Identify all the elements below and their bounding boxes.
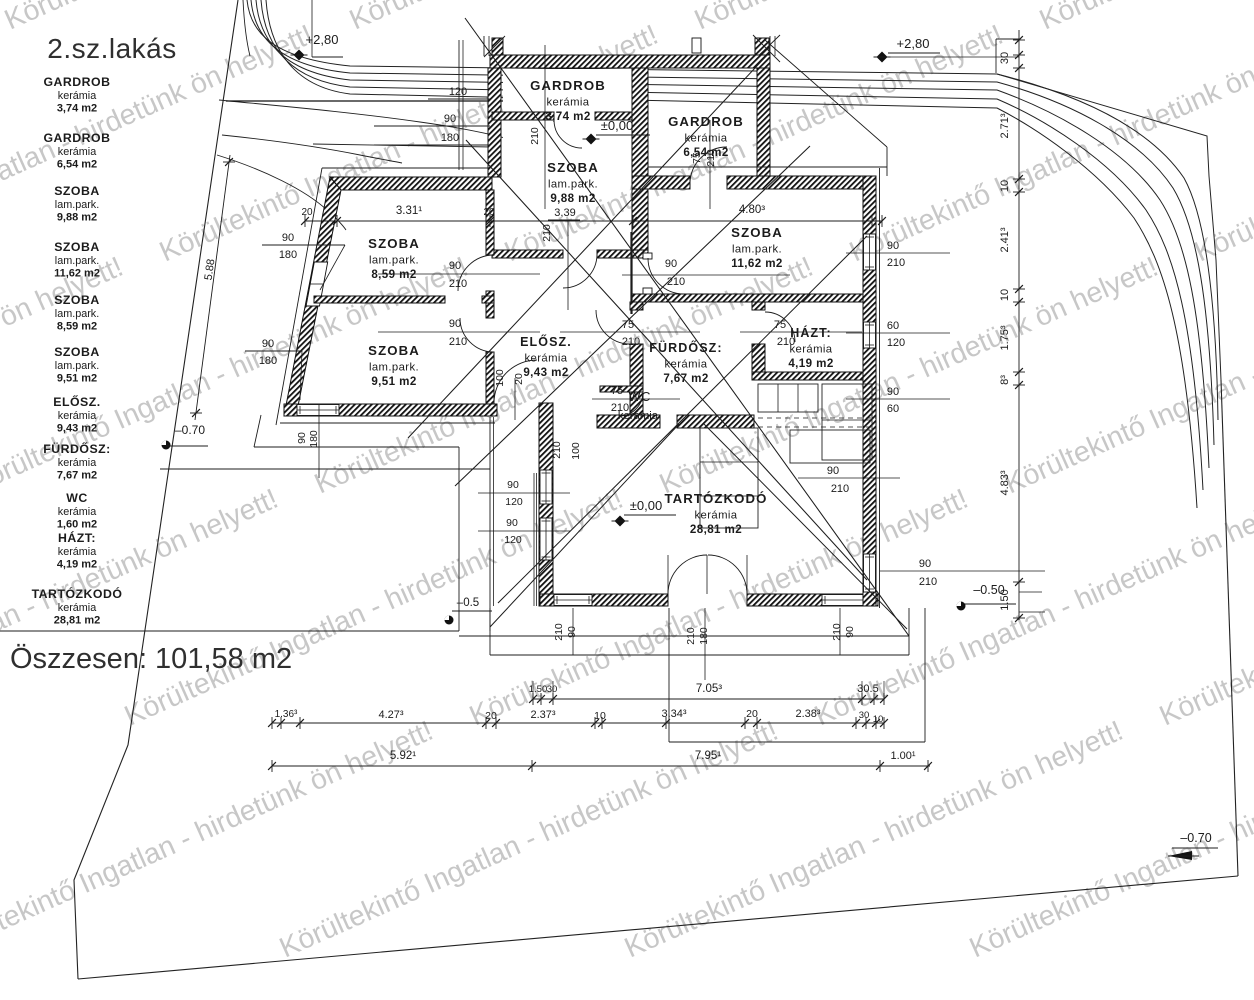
svg-text:3,74 m2: 3,74 m2 (545, 110, 590, 123)
svg-text:9,51 m2: 9,51 m2 (57, 373, 97, 385)
svg-text:kerámia: kerámia (58, 546, 96, 558)
svg-text:100: 100 (570, 442, 582, 460)
svg-text:HÁZT:: HÁZT: (58, 530, 96, 545)
svg-text:28,81 m2: 28,81 m2 (54, 615, 100, 627)
svg-text:11,62 m2: 11,62 m2 (54, 268, 100, 280)
svg-text:120: 120 (505, 496, 523, 508)
svg-text:90: 90 (449, 260, 461, 272)
svg-text:90: 90 (665, 258, 677, 270)
svg-text:8,59 m2: 8,59 m2 (371, 268, 416, 281)
svg-text:90: 90 (507, 479, 519, 491)
svg-text:TARTÓZKODÓ: TARTÓZKODÓ (664, 491, 767, 506)
svg-text:20: 20 (485, 710, 497, 722)
svg-text:8,59 m2: 8,59 m2 (57, 321, 97, 333)
svg-text:–0.70: –0.70 (175, 423, 205, 437)
svg-text:HÁZT:: HÁZT: (790, 325, 832, 340)
svg-text:210: 210 (551, 441, 563, 459)
svg-text:kerámia: kerámia (547, 97, 590, 109)
svg-text:SZOBA: SZOBA (54, 240, 100, 254)
svg-text:20: 20 (746, 708, 758, 720)
svg-text:SZOBA: SZOBA (54, 345, 100, 359)
svg-text:90: 90 (919, 558, 931, 570)
svg-text:180: 180 (308, 430, 320, 448)
svg-text:2.37³: 2.37³ (530, 709, 555, 721)
svg-text:30.5: 30.5 (857, 683, 878, 695)
svg-text:28,81 m2: 28,81 m2 (690, 523, 742, 536)
svg-text:4.80³: 4.80³ (739, 204, 765, 216)
svg-text:SZOBA: SZOBA (731, 225, 783, 240)
svg-text:9,51 m2: 9,51 m2 (371, 375, 416, 388)
svg-text:3,74 m2: 3,74 m2 (57, 103, 97, 115)
svg-text:90: 90 (449, 318, 461, 330)
svg-text:3,39: 3,39 (554, 207, 575, 219)
svg-text:210: 210 (831, 623, 843, 641)
svg-text:1.50: 1.50 (999, 589, 1011, 610)
svg-text:20: 20 (513, 373, 525, 385)
svg-text:75: 75 (622, 319, 634, 331)
svg-text:WC: WC (629, 390, 652, 404)
svg-text:9,43 m2: 9,43 m2 (523, 366, 568, 379)
svg-text:±0,00: ±0,00 (630, 498, 662, 513)
svg-text:90: 90 (506, 517, 518, 529)
svg-text:11,62 m2: 11,62 m2 (731, 257, 783, 270)
svg-text:10: 10 (999, 289, 1011, 301)
svg-text:7.05³: 7.05³ (696, 683, 722, 695)
svg-text:kerámia: kerámia (58, 506, 96, 518)
svg-text:kerámia: kerámia (695, 510, 738, 522)
svg-text:2.sz.lakás: 2.sz.lakás (47, 33, 177, 64)
svg-text:60: 60 (887, 320, 899, 332)
svg-text:75: 75 (691, 152, 703, 164)
svg-text:GARDROB: GARDROB (43, 75, 110, 89)
svg-text:20: 20 (301, 207, 313, 218)
svg-text:90: 90 (296, 432, 308, 444)
svg-text:210: 210 (449, 278, 467, 290)
svg-text:210: 210 (667, 276, 685, 288)
svg-text:75: 75 (774, 319, 786, 331)
svg-text:±0,00: ±0,00 (601, 118, 633, 133)
svg-text:8³: 8³ (999, 375, 1011, 385)
svg-text:–0.5: –0.5 (457, 597, 479, 609)
svg-text:1.00¹: 1.00¹ (890, 750, 915, 762)
svg-text:210: 210 (887, 257, 905, 269)
svg-text:10: 10 (594, 710, 606, 722)
svg-text:ELŐSZ.: ELŐSZ. (53, 394, 100, 409)
svg-text:lam.park.: lam.park. (55, 255, 99, 267)
svg-text:90: 90 (887, 240, 899, 252)
svg-text:kerámia: kerámia (58, 457, 96, 469)
svg-text:TARTÓZKODÓ: TARTÓZKODÓ (32, 586, 123, 601)
svg-text:210: 210 (529, 127, 541, 145)
svg-text:20: 20 (483, 207, 495, 218)
svg-text:210: 210 (449, 336, 467, 348)
svg-text:30: 30 (547, 684, 558, 695)
svg-text:180: 180 (259, 355, 277, 367)
svg-text:210: 210 (705, 149, 717, 167)
svg-text:–0.70: –0.70 (1180, 831, 1211, 845)
svg-text:kerámia: kerámia (525, 353, 568, 365)
svg-text:kerámia: kerámia (685, 133, 728, 145)
svg-text:210: 210 (541, 224, 553, 242)
svg-text:180: 180 (441, 132, 459, 144)
svg-text:lam.park.: lam.park. (55, 199, 99, 211)
svg-text:210: 210 (611, 402, 629, 414)
svg-text:Öszzesen: 101,58 m2: Öszzesen: 101,58 m2 (10, 643, 292, 675)
svg-text:ELŐSZ.: ELŐSZ. (520, 334, 572, 349)
svg-text:9,88 m2: 9,88 m2 (550, 192, 595, 205)
svg-text:120: 120 (504, 534, 522, 546)
svg-text:GARDROB: GARDROB (43, 131, 110, 145)
svg-text:5.92¹: 5.92¹ (390, 750, 416, 762)
svg-text:9,88 m2: 9,88 m2 (57, 212, 97, 224)
svg-text:lam.park.: lam.park. (548, 179, 598, 191)
svg-text:210: 210 (622, 336, 640, 348)
svg-text:100: 100 (494, 369, 506, 387)
svg-text:+2,80: +2,80 (306, 32, 339, 47)
svg-text:75: 75 (611, 385, 623, 397)
svg-text:2.38³: 2.38³ (795, 708, 820, 720)
svg-text:SZOBA: SZOBA (54, 293, 100, 307)
svg-text:210: 210 (777, 336, 795, 348)
svg-text:SZOBA: SZOBA (54, 184, 100, 198)
svg-text:GARDROB: GARDROB (530, 78, 606, 93)
svg-text:9,43 m2: 9,43 m2 (57, 423, 97, 435)
svg-text:10: 10 (873, 714, 884, 725)
svg-text:7,67 m2: 7,67 m2 (57, 470, 97, 482)
svg-text:3.31¹: 3.31¹ (396, 205, 422, 217)
svg-text:120: 120 (887, 337, 905, 349)
svg-text:210: 210 (553, 623, 565, 641)
svg-text:1.75³: 1.75³ (999, 325, 1011, 350)
svg-text:1.36³: 1.36³ (275, 709, 298, 720)
svg-text:lam.park.: lam.park. (369, 362, 419, 374)
svg-text:90: 90 (262, 338, 274, 350)
svg-text:SZOBA: SZOBA (368, 343, 420, 358)
svg-text:4.27³: 4.27³ (378, 709, 403, 721)
svg-text:+2,80: +2,80 (897, 36, 930, 51)
svg-text:lam.park.: lam.park. (55, 360, 99, 372)
svg-text:120: 120 (449, 86, 467, 98)
svg-text:3.34³: 3.34³ (661, 708, 686, 720)
svg-text:kerámia: kerámia (665, 359, 708, 371)
svg-text:90: 90 (887, 386, 899, 398)
svg-text:lam.park.: lam.park. (55, 308, 99, 320)
svg-text:60: 60 (887, 403, 899, 415)
svg-text:90: 90 (444, 113, 456, 125)
svg-text:210: 210 (831, 483, 849, 495)
svg-text:lam.park.: lam.park. (732, 244, 782, 256)
svg-text:FÜRDŐSZ:: FÜRDŐSZ: (649, 340, 722, 355)
svg-text:30: 30 (859, 710, 870, 721)
svg-text:30: 30 (999, 52, 1011, 64)
svg-text:kerámia: kerámia (58, 146, 96, 158)
svg-text:SZOBA: SZOBA (547, 160, 599, 175)
svg-text:4,19 m2: 4,19 m2 (57, 559, 97, 571)
svg-text:SZOBA: SZOBA (368, 236, 420, 251)
svg-text:90: 90 (827, 465, 839, 477)
svg-text:2.71³: 2.71³ (999, 113, 1011, 138)
svg-text:210: 210 (919, 576, 937, 588)
svg-text:90: 90 (282, 232, 294, 244)
svg-text:7,67 m2: 7,67 m2 (663, 372, 708, 385)
svg-text:FÜRDŐSZ:: FÜRDŐSZ: (43, 441, 111, 456)
svg-text:WC: WC (66, 491, 88, 505)
svg-text:180: 180 (279, 249, 297, 261)
svg-text:4.83³: 4.83³ (999, 470, 1011, 495)
svg-text:GARDROB: GARDROB (668, 114, 744, 129)
svg-text:lam.park.: lam.park. (369, 255, 419, 267)
svg-text:7.95¹: 7.95¹ (695, 750, 721, 762)
svg-text:1,60 m2: 1,60 m2 (57, 519, 97, 531)
svg-text:2.41³: 2.41³ (999, 227, 1011, 252)
svg-text:kerámia: kerámia (58, 410, 96, 422)
svg-text:kerámia: kerámia (58, 90, 96, 102)
svg-text:1.50: 1.50 (529, 684, 548, 695)
svg-text:4,19 m2: 4,19 m2 (788, 357, 833, 370)
svg-text:6,54 m2: 6,54 m2 (57, 159, 97, 171)
svg-text:kerámia: kerámia (58, 602, 96, 614)
svg-text:10: 10 (999, 180, 1011, 192)
svg-text:kerámia: kerámia (790, 344, 833, 356)
